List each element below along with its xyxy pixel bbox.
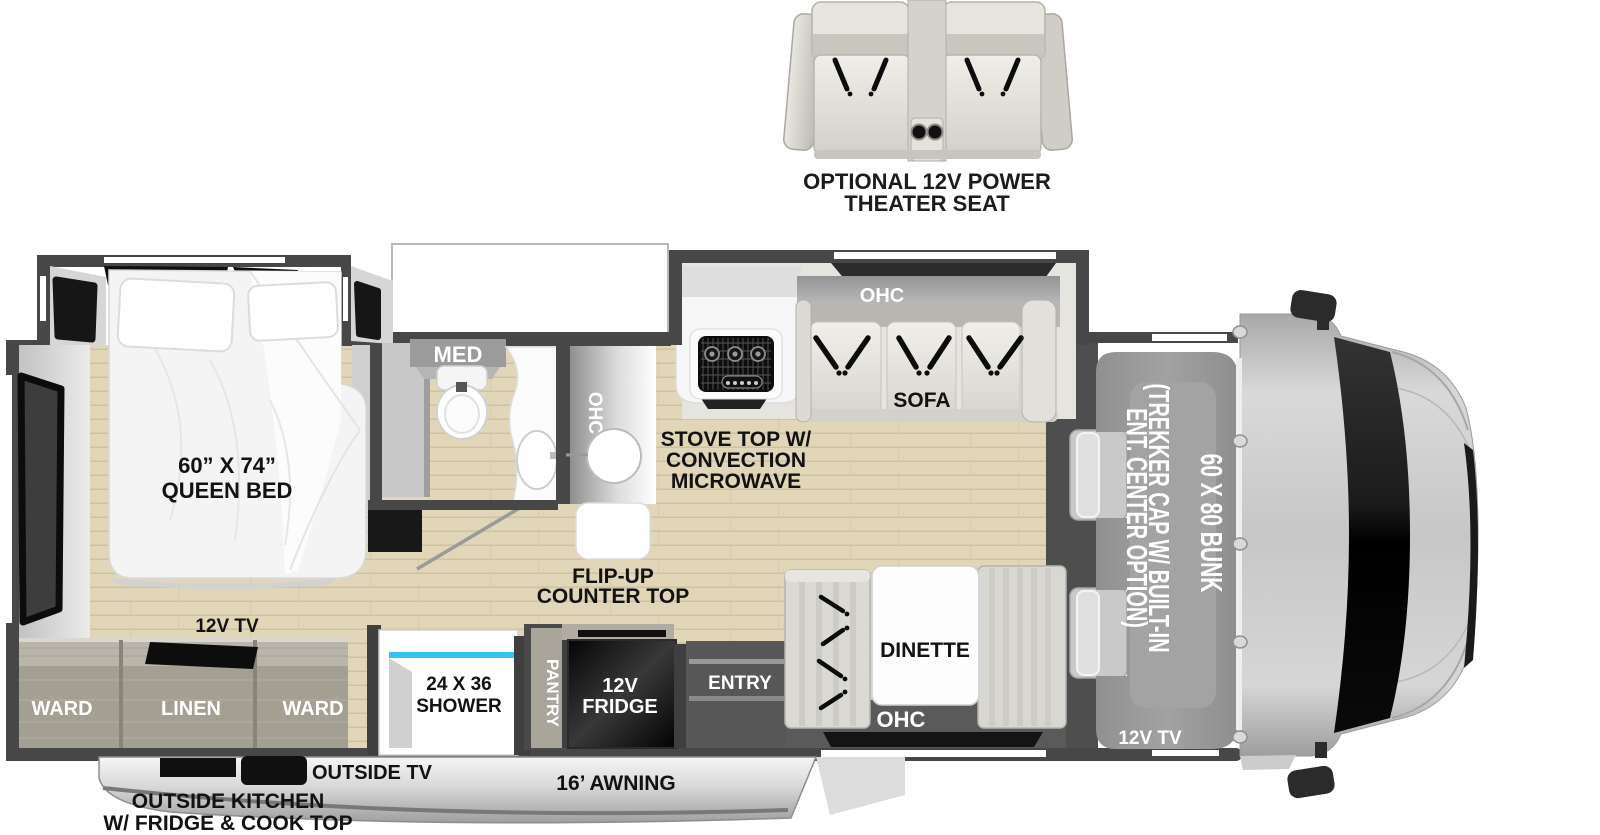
svg-text:FRIDGE: FRIDGE xyxy=(582,696,658,718)
svg-text:MED: MED xyxy=(434,342,483,367)
svg-text:W/ FRIDGE & COOK TOP: W/ FRIDGE & COOK TOP xyxy=(103,812,352,835)
svg-text:CONVECTION: CONVECTION xyxy=(666,449,806,472)
svg-text:LINEN: LINEN xyxy=(161,698,221,720)
svg-text:ENTRY: ENTRY xyxy=(708,673,772,694)
svg-text:WARD: WARD xyxy=(31,698,92,720)
svg-text:60” X 74”: 60” X 74” xyxy=(178,453,276,478)
svg-text:OHC: OHC xyxy=(860,285,904,307)
svg-text:OHC: OHC xyxy=(877,707,926,732)
svg-text:SHOWER: SHOWER xyxy=(416,696,502,717)
svg-text:12V TV: 12V TV xyxy=(195,616,259,637)
svg-text:OHC: OHC xyxy=(584,392,605,435)
svg-text:THEATER SEAT: THEATER SEAT xyxy=(844,191,1010,216)
svg-text:12V TV: 12V TV xyxy=(1118,728,1182,749)
svg-text:OUTSIDE KITCHEN: OUTSIDE KITCHEN xyxy=(132,790,325,813)
svg-text:16’ AWNING: 16’ AWNING xyxy=(556,772,675,795)
svg-text:QUEEN BED: QUEEN BED xyxy=(162,478,293,503)
svg-text:STOVE TOP W/: STOVE TOP W/ xyxy=(661,428,812,451)
svg-text:COUNTER TOP: COUNTER TOP xyxy=(537,585,689,608)
svg-text:24 X 36: 24 X 36 xyxy=(426,674,492,695)
svg-text:OUTSIDE TV: OUTSIDE TV xyxy=(312,762,433,784)
svg-text:60 X 80 BUNK: 60 X 80 BUNK xyxy=(1194,454,1229,593)
svg-text:ENT. CENTER OPTION): ENT. CENTER OPTION) xyxy=(1120,408,1153,628)
svg-text:PANTRY: PANTRY xyxy=(543,659,562,728)
svg-text:DINETTE: DINETTE xyxy=(880,639,970,662)
svg-text:12V: 12V xyxy=(602,675,638,697)
svg-text:SOFA: SOFA xyxy=(893,389,950,412)
svg-text:MICROWAVE: MICROWAVE xyxy=(671,470,801,493)
svg-text:WARD: WARD xyxy=(282,698,343,720)
